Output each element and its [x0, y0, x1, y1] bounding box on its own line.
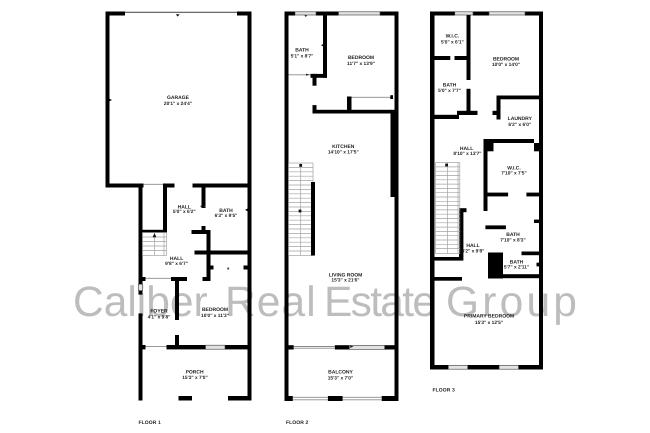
- svg-text:FLOOR 1: FLOOR 1: [139, 420, 161, 426]
- svg-text:15'3" x 7'0": 15'3" x 7'0": [328, 376, 354, 382]
- svg-text:BATH: BATH: [510, 259, 524, 265]
- svg-text:15'3" x 7'0": 15'3" x 7'0": [182, 375, 208, 381]
- svg-text:BALCONY: BALCONY: [328, 370, 353, 376]
- svg-text:LAUNDRY: LAUNDRY: [508, 116, 533, 122]
- svg-text:9'8" x 6'7": 9'8" x 6'7": [165, 261, 188, 267]
- svg-text:15'3" x 21'6": 15'3" x 21'6": [331, 278, 359, 284]
- svg-text:GARAGE: GARAGE: [167, 95, 190, 101]
- svg-text:FLOOR 2: FLOOR 2: [286, 420, 308, 426]
- svg-text:BEDROOM: BEDROOM: [202, 307, 228, 313]
- svg-text:BATH: BATH: [295, 48, 309, 54]
- svg-text:8'10" x 13'7": 8'10" x 13'7": [453, 151, 481, 157]
- svg-text:7'10" x 8'3": 7'10" x 8'3": [500, 238, 526, 244]
- svg-text:4'2" x 9'8": 4'2" x 9'8": [462, 249, 485, 255]
- svg-text:HALL: HALL: [460, 146, 473, 152]
- svg-text:15'3" x 12'5": 15'3" x 12'5": [475, 320, 503, 326]
- svg-text:4'1" x 9'8": 4'1" x 9'8": [148, 315, 171, 321]
- svg-text:14'10" x 17'5": 14'10" x 17'5": [328, 150, 359, 156]
- svg-text:5'0" x 6'1": 5'0" x 6'1": [441, 39, 464, 45]
- svg-text:KITCHEN: KITCHEN: [332, 144, 355, 150]
- svg-text:10'0" x 14'0": 10'0" x 14'0": [492, 62, 520, 68]
- svg-text:10'0" x 11'3": 10'0" x 11'3": [201, 313, 229, 319]
- svg-text:BEDROOM: BEDROOM: [493, 56, 519, 62]
- svg-text:PORCH: PORCH: [186, 369, 204, 375]
- svg-text:PRIMARY BEDROOM: PRIMARY BEDROOM: [464, 314, 514, 320]
- svg-text:5'0" x 7'7": 5'0" x 7'7": [438, 88, 461, 94]
- svg-text:BATH: BATH: [443, 82, 457, 88]
- svg-text:7'10" x 7'5": 7'10" x 7'5": [501, 170, 527, 176]
- svg-text:BEDROOM: BEDROOM: [348, 55, 374, 61]
- svg-text:5'1" x 8'7": 5'1" x 8'7": [291, 54, 314, 60]
- svg-text:BATH: BATH: [506, 232, 520, 238]
- svg-text:20'1" x 24'4": 20'1" x 24'4": [164, 101, 192, 107]
- svg-text:FLOOR 3: FLOOR 3: [433, 387, 455, 393]
- svg-text:W.I.C.: W.I.C.: [446, 34, 460, 40]
- svg-text:5'7" x 2'11": 5'7" x 2'11": [504, 265, 529, 271]
- svg-text:6'2" x 6'0": 6'2" x 6'0": [508, 122, 531, 128]
- svg-text:HALL: HALL: [466, 243, 479, 249]
- svg-text:5'0" x 6'2": 5'0" x 6'2": [173, 209, 196, 215]
- svg-text:W.I.C.: W.I.C.: [507, 165, 521, 171]
- svg-text:11'7" x 13'9": 11'7" x 13'9": [347, 61, 375, 67]
- svg-text:BATH: BATH: [219, 208, 233, 214]
- svg-text:6'3" x 9'5": 6'3" x 9'5": [215, 213, 238, 219]
- svg-text:FOYER: FOYER: [150, 309, 168, 315]
